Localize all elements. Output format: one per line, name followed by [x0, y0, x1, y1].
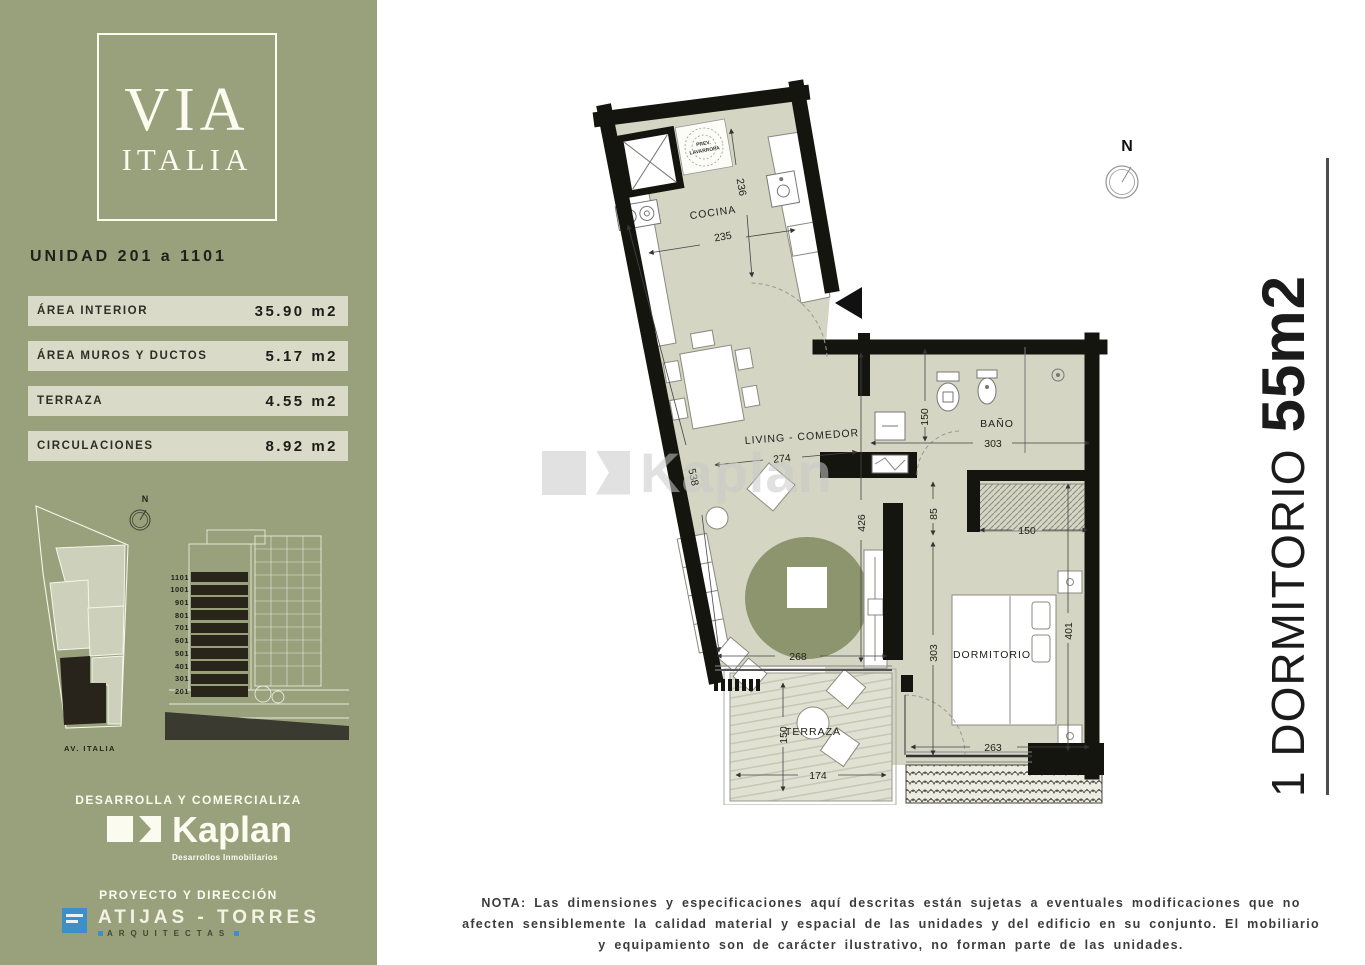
- side-table: [706, 507, 728, 529]
- floor-plan: PREV. LAVARROPA: [580, 75, 1140, 805]
- floor-highlight-bar: [191, 686, 248, 696]
- floor-row: 801: [165, 610, 248, 620]
- dot-icon: [98, 931, 103, 936]
- penthouse: [207, 530, 265, 544]
- floor-highlight-bar: [191, 585, 248, 595]
- closet-top-wall: [967, 470, 1093, 481]
- via-italia-logo: VIA ITALIA: [97, 33, 277, 221]
- street-label: AV. ITALIA: [30, 744, 150, 753]
- area-value: 5.17 m2: [265, 348, 338, 365]
- architects-subtitle-row: ARQUITECTAS: [98, 929, 320, 938]
- site-north-indicator: N: [130, 494, 150, 530]
- area-value: 4.55 m2: [265, 393, 338, 410]
- area-label: ÁREA MUROS Y DUCTOS: [37, 350, 208, 362]
- dim-closet-width: 150: [1018, 525, 1036, 537]
- dim-terrace-width: 174: [809, 770, 827, 782]
- floor-row: 501: [165, 648, 248, 658]
- unit-title: UNIDAD 201 a 1101: [30, 248, 227, 266]
- hall-wall: [883, 503, 903, 660]
- label-bath: BAÑO: [980, 417, 1014, 430]
- floor-highlight-bar: [191, 635, 248, 645]
- architects-icon: [62, 908, 87, 933]
- floor-highlight-bar: [191, 597, 248, 607]
- architects-heading: PROYECTO Y DIRECCIÓN: [0, 888, 377, 902]
- floor-row: 901: [165, 597, 248, 607]
- dim-bath-height: 150: [919, 408, 931, 426]
- area-table: ÁREA INTERIOR 35.90 m2 ÁREA MUROS Y DUCT…: [28, 296, 348, 476]
- parcel: [88, 606, 124, 656]
- floor-label: 301: [165, 674, 189, 683]
- architects-name: ATIJAS - TORRES: [98, 908, 320, 927]
- floor-label: 501: [165, 649, 189, 658]
- floor-row: 401: [165, 661, 248, 671]
- label-bedroom: DORMITORIO: [953, 649, 1031, 661]
- floor-highlight-bar: [191, 648, 248, 658]
- kitchen-sink: [766, 171, 799, 207]
- plan-north-indicator: N: [1106, 138, 1138, 198]
- duct-shaft: [620, 130, 681, 194]
- bidet: [977, 370, 997, 404]
- floor-highlight-bar: [191, 572, 248, 582]
- floor-label: 201: [165, 687, 189, 696]
- unit-type-title: 1 DORMITORIO 55m2: [1249, 275, 1318, 797]
- floor-label: 401: [165, 662, 189, 671]
- floor-row: 1101: [165, 572, 248, 582]
- entry-arrow: [835, 287, 862, 319]
- kaplan-icon: [107, 813, 165, 846]
- dim-corridor-height: 303: [928, 644, 940, 662]
- floor-row: 301: [165, 674, 248, 684]
- site-plan-drawing: N: [28, 488, 178, 768]
- toilet: [937, 372, 959, 411]
- area-label: TERRAZA: [37, 395, 103, 407]
- floor-highlight-bar: [191, 674, 248, 684]
- washer: [872, 455, 908, 473]
- logo-line1: VIA: [99, 79, 275, 141]
- floor-row: 1001: [165, 585, 248, 595]
- building-elevation: 1101 1001 901 801 701 601: [165, 528, 355, 796]
- label-terrace: TERRAZA: [785, 726, 841, 738]
- developer-name: Kaplan: [172, 813, 292, 846]
- plan-north-label: N: [1121, 138, 1133, 155]
- kaplan-logo: Kaplan: [107, 813, 292, 846]
- dim-living-bottom: 268: [789, 651, 807, 663]
- area-label: ÁREA INTERIOR: [37, 305, 148, 317]
- dim-bed-width: 263: [984, 742, 1002, 754]
- brochure-page: VIA ITALIA UNIDAD 201 a 1101 ÁREA INTERI…: [0, 0, 1365, 965]
- area-row: ÁREA MUROS Y DUCTOS 5.17 m2: [28, 341, 348, 371]
- closet: [977, 484, 1085, 531]
- closet-left-wall: [967, 470, 980, 532]
- developer-heading: DESARROLLA Y COMERCIALIZA: [0, 793, 377, 807]
- floor-highlight-bar: [191, 623, 248, 633]
- floor-row: 701: [165, 623, 248, 633]
- sidebar: VIA ITALIA UNIDAD 201 a 1101 ÁREA INTERI…: [0, 0, 377, 965]
- architects-logo: ATIJAS - TORRES ARQUITECTAS: [62, 908, 320, 938]
- area-value: 8.92 m2: [265, 438, 338, 455]
- unit-size-text: 55m2: [1249, 275, 1318, 432]
- area-value: 35.90 m2: [255, 303, 338, 320]
- dim-living-height: 426: [856, 514, 868, 532]
- area-row: CIRCULACIONES 8.92 m2: [28, 431, 348, 461]
- floor-highlight-bar: [191, 610, 248, 620]
- floor-label: 801: [165, 611, 189, 620]
- architects-subtitle: ARQUITECTAS: [107, 929, 230, 938]
- logo-line2: ITALIA: [99, 143, 275, 177]
- floor-label: 901: [165, 598, 189, 607]
- floor-label: 701: [165, 623, 189, 632]
- bedroom-door-stub: [901, 675, 913, 692]
- site-north-label: N: [142, 494, 149, 504]
- parcel: [50, 580, 90, 650]
- vanity: [875, 412, 905, 440]
- title-rule: [1326, 158, 1329, 795]
- dim-bath-width: 303: [984, 438, 1002, 450]
- developer-tagline: Desarrollos Inmobiliarios: [172, 853, 278, 862]
- dim-hall-gap: 85: [928, 508, 940, 520]
- area-row: ÁREA INTERIOR 35.90 m2: [28, 296, 348, 326]
- unit-type-text: 1 DORMITORIO: [1261, 448, 1315, 797]
- area-row: TERRAZA 4.55 m2: [28, 386, 348, 416]
- ground: [165, 712, 349, 740]
- floor-list: 1101 1001 901 801 701 601: [165, 572, 248, 699]
- floor-label: 601: [165, 636, 189, 645]
- dim-bed-height: 401: [1063, 622, 1075, 640]
- rug-center-table: [787, 567, 827, 608]
- dot-icon: [234, 931, 239, 936]
- area-label: CIRCULACIONES: [37, 440, 154, 452]
- floor-row: 201: [165, 686, 248, 696]
- floor-row: 601: [165, 635, 248, 645]
- bedroom-corner-wall: [1028, 743, 1104, 775]
- floor-label: 1101: [165, 573, 189, 582]
- dim-living-width: 274: [773, 452, 792, 465]
- floor-label: 1001: [165, 585, 189, 594]
- disclaimer-note: NOTA: Las dimensiones y especificaciones…: [455, 893, 1327, 956]
- floor-highlight-bar: [191, 661, 248, 671]
- laundry-area: PREV. LAVARROPA: [675, 119, 733, 175]
